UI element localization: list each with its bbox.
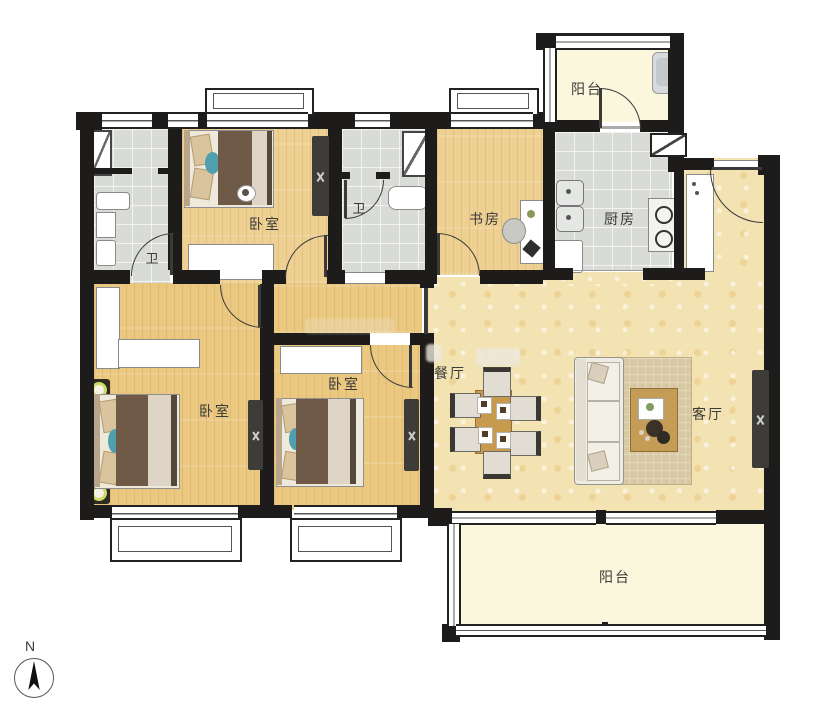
door-leaf (258, 285, 261, 327)
desk (118, 339, 200, 368)
dish-dot (500, 436, 506, 442)
wall (716, 510, 768, 524)
wall (668, 158, 714, 170)
door-leaf (424, 288, 428, 334)
room-label-balcony-bottom: 阳台 (587, 569, 643, 586)
door-leaf (324, 235, 327, 277)
room-label-living: 客厅 (680, 406, 736, 423)
room-label-dining: 餐厅 (422, 365, 478, 382)
wall (390, 112, 454, 129)
drain-dot (566, 215, 571, 220)
tv-cabinet-icon (404, 399, 419, 471)
decor-dot (242, 189, 249, 196)
bay-window-inner (457, 93, 529, 109)
cabinet (280, 346, 362, 374)
wall (480, 270, 543, 284)
partition-wall (94, 168, 132, 174)
toilet-icon (96, 240, 116, 266)
drain-dot (566, 189, 571, 194)
compass-north-label: N (20, 638, 40, 655)
dining-chair (510, 396, 541, 421)
room-label-bedroom-top: 卧室 (237, 216, 293, 233)
window (355, 112, 390, 129)
wall (238, 505, 292, 518)
bay-window-inner (118, 526, 232, 552)
bathtub-icon (388, 186, 428, 210)
bed-blanket (116, 395, 148, 486)
room-label-bath-main: 卫 (139, 250, 167, 267)
balcony-window (556, 33, 670, 50)
plant-icon (646, 403, 654, 411)
knob-dot (695, 191, 699, 195)
wall (668, 33, 684, 132)
dish-dot (482, 431, 488, 437)
wall (543, 268, 573, 280)
wall (397, 505, 430, 518)
wall (596, 510, 606, 524)
vase-icon (657, 431, 670, 444)
wall (80, 270, 130, 284)
wall (262, 270, 286, 284)
bed-bench (350, 399, 356, 484)
room-label-balcony-top: 阳台 (559, 81, 615, 98)
room-label-study: 书房 (457, 211, 513, 228)
dining-chair (483, 451, 511, 479)
tv-cabinet-icon (248, 400, 263, 470)
burner-icon (655, 206, 673, 224)
dining-chair (483, 367, 511, 397)
window (207, 112, 308, 129)
wardrobe-icon (312, 136, 329, 216)
decor-dot (645, 436, 650, 441)
wall (674, 172, 684, 272)
wall (420, 270, 434, 288)
bed-bench (171, 395, 177, 486)
bed-sheet (328, 399, 350, 484)
room-label-bedroom-middle: 卧室 (316, 376, 372, 393)
bed-blanket (296, 399, 328, 484)
sliding-door-window (606, 511, 716, 525)
burner-icon (655, 230, 673, 248)
dining-chair (450, 427, 481, 452)
decor-dot (639, 430, 644, 435)
wall (80, 112, 94, 520)
doorway-threshold (573, 270, 643, 279)
wardrobe (96, 287, 120, 369)
window (102, 112, 152, 129)
bay-window-inner (298, 526, 392, 552)
balcony-railing (543, 48, 557, 122)
kitchen-window-icon (650, 133, 687, 157)
bed-sheet (148, 395, 171, 486)
door-leaf (170, 233, 173, 275)
wall (173, 270, 220, 284)
partition-wall (342, 172, 350, 179)
bed-bench (267, 131, 272, 205)
watermark-blob (305, 318, 395, 334)
partition-wall (158, 168, 170, 174)
sofa-back (576, 359, 586, 481)
wall (327, 270, 345, 284)
watermark-blob (426, 344, 442, 362)
room-label-kitchen: 厨房 (592, 211, 648, 228)
wall (274, 333, 370, 345)
tv-cabinet-icon (752, 370, 769, 468)
wall (425, 129, 437, 270)
dish-dot (481, 401, 487, 407)
room-label-bedroom-master: 卧室 (187, 403, 243, 420)
wall (152, 112, 168, 129)
balcony-railing (447, 524, 461, 626)
partition-wall (376, 172, 390, 179)
dining-chair (510, 431, 541, 456)
bay-window-inner (213, 93, 304, 109)
wall (543, 118, 555, 270)
window (168, 112, 198, 129)
door-leaf (409, 345, 412, 387)
vanity-icon (96, 212, 116, 238)
knob-dot (692, 182, 696, 186)
door-leaf (437, 233, 440, 275)
balcony-railing (456, 624, 766, 637)
watermark-blob (476, 348, 520, 366)
window (451, 112, 533, 129)
room-label-bath-second: 卫 (346, 200, 374, 217)
wall (643, 268, 705, 280)
door-leaf (712, 167, 762, 170)
sliding-door-window (452, 511, 596, 525)
plant-icon (527, 210, 535, 218)
sofa-cushion (587, 401, 620, 442)
shoe-cabinet (686, 174, 714, 272)
wall (328, 129, 342, 270)
sink-icon (96, 192, 130, 210)
floor-plan: 阳台 厨房 书房 卫 卫 卧室 卧室 卧室 餐厅 客厅 阳台 N (0, 0, 813, 710)
wall (80, 505, 113, 518)
doorway-threshold (345, 272, 385, 284)
dish-dot (500, 407, 506, 413)
